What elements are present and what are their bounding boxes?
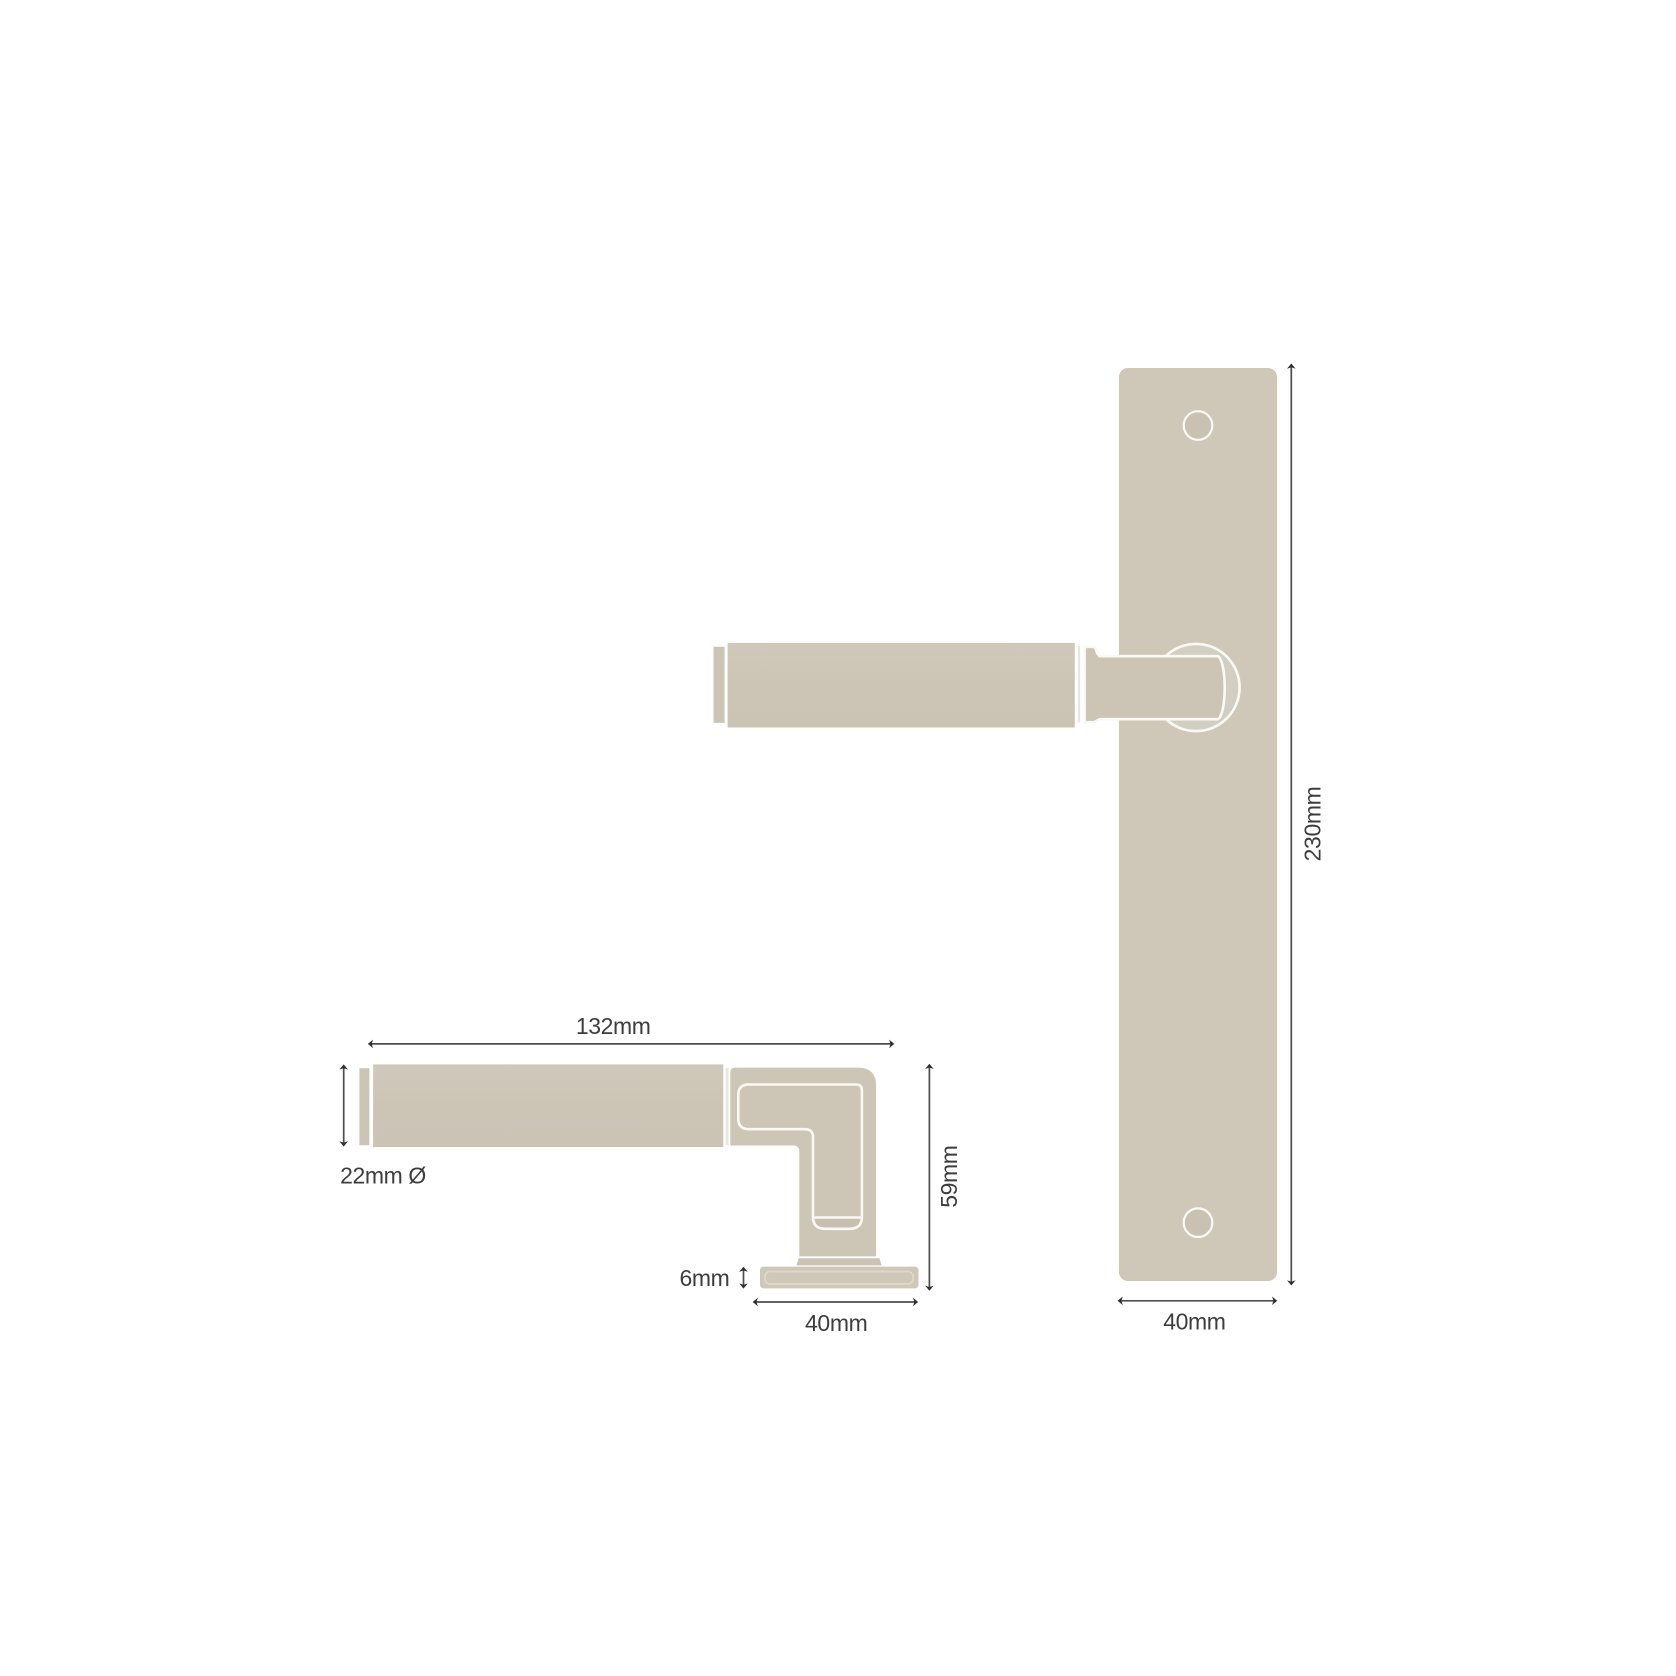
svg-text:132mm: 132mm bbox=[576, 1013, 651, 1039]
svg-text:40mm: 40mm bbox=[805, 1310, 867, 1336]
svg-text:40mm: 40mm bbox=[1163, 1309, 1225, 1335]
svg-text:6mm: 6mm bbox=[680, 1265, 730, 1291]
svg-text:22mm Ø: 22mm Ø bbox=[340, 1162, 426, 1188]
svg-text:59mm: 59mm bbox=[936, 1145, 962, 1207]
svg-text:230mm: 230mm bbox=[1300, 787, 1326, 862]
